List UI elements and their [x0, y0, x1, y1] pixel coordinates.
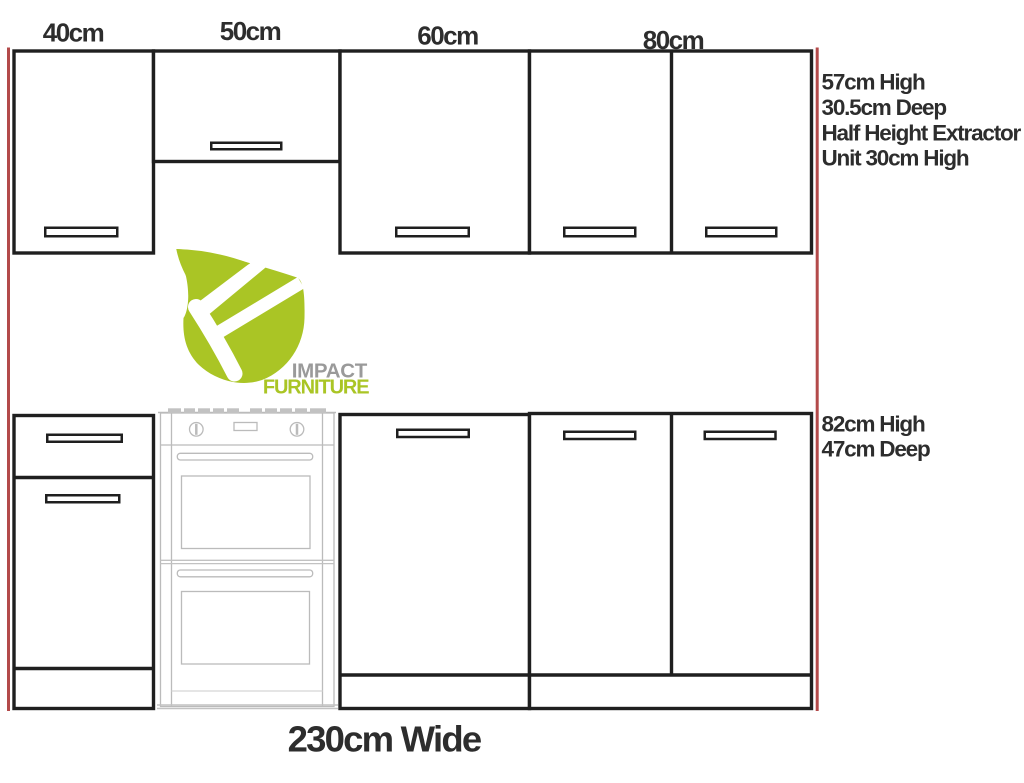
svg-text:60cm: 60cm [417, 21, 478, 51]
svg-text:30.5cm Deep: 30.5cm Deep [822, 95, 947, 120]
svg-text:57cm High: 57cm High [822, 70, 925, 95]
svg-text:47cm Deep: 47cm Deep [822, 437, 930, 462]
svg-text:40cm: 40cm [43, 18, 104, 48]
svg-text:FURNITURE: FURNITURE [263, 377, 369, 399]
svg-text:230cm Wide: 230cm Wide [288, 719, 482, 760]
svg-text:50cm: 50cm [220, 16, 281, 46]
svg-text:Half Height Extractor: Half Height Extractor [822, 120, 1022, 145]
svg-text:Unit 30cm High: Unit 30cm High [822, 146, 969, 171]
svg-text:82cm High: 82cm High [822, 412, 925, 437]
